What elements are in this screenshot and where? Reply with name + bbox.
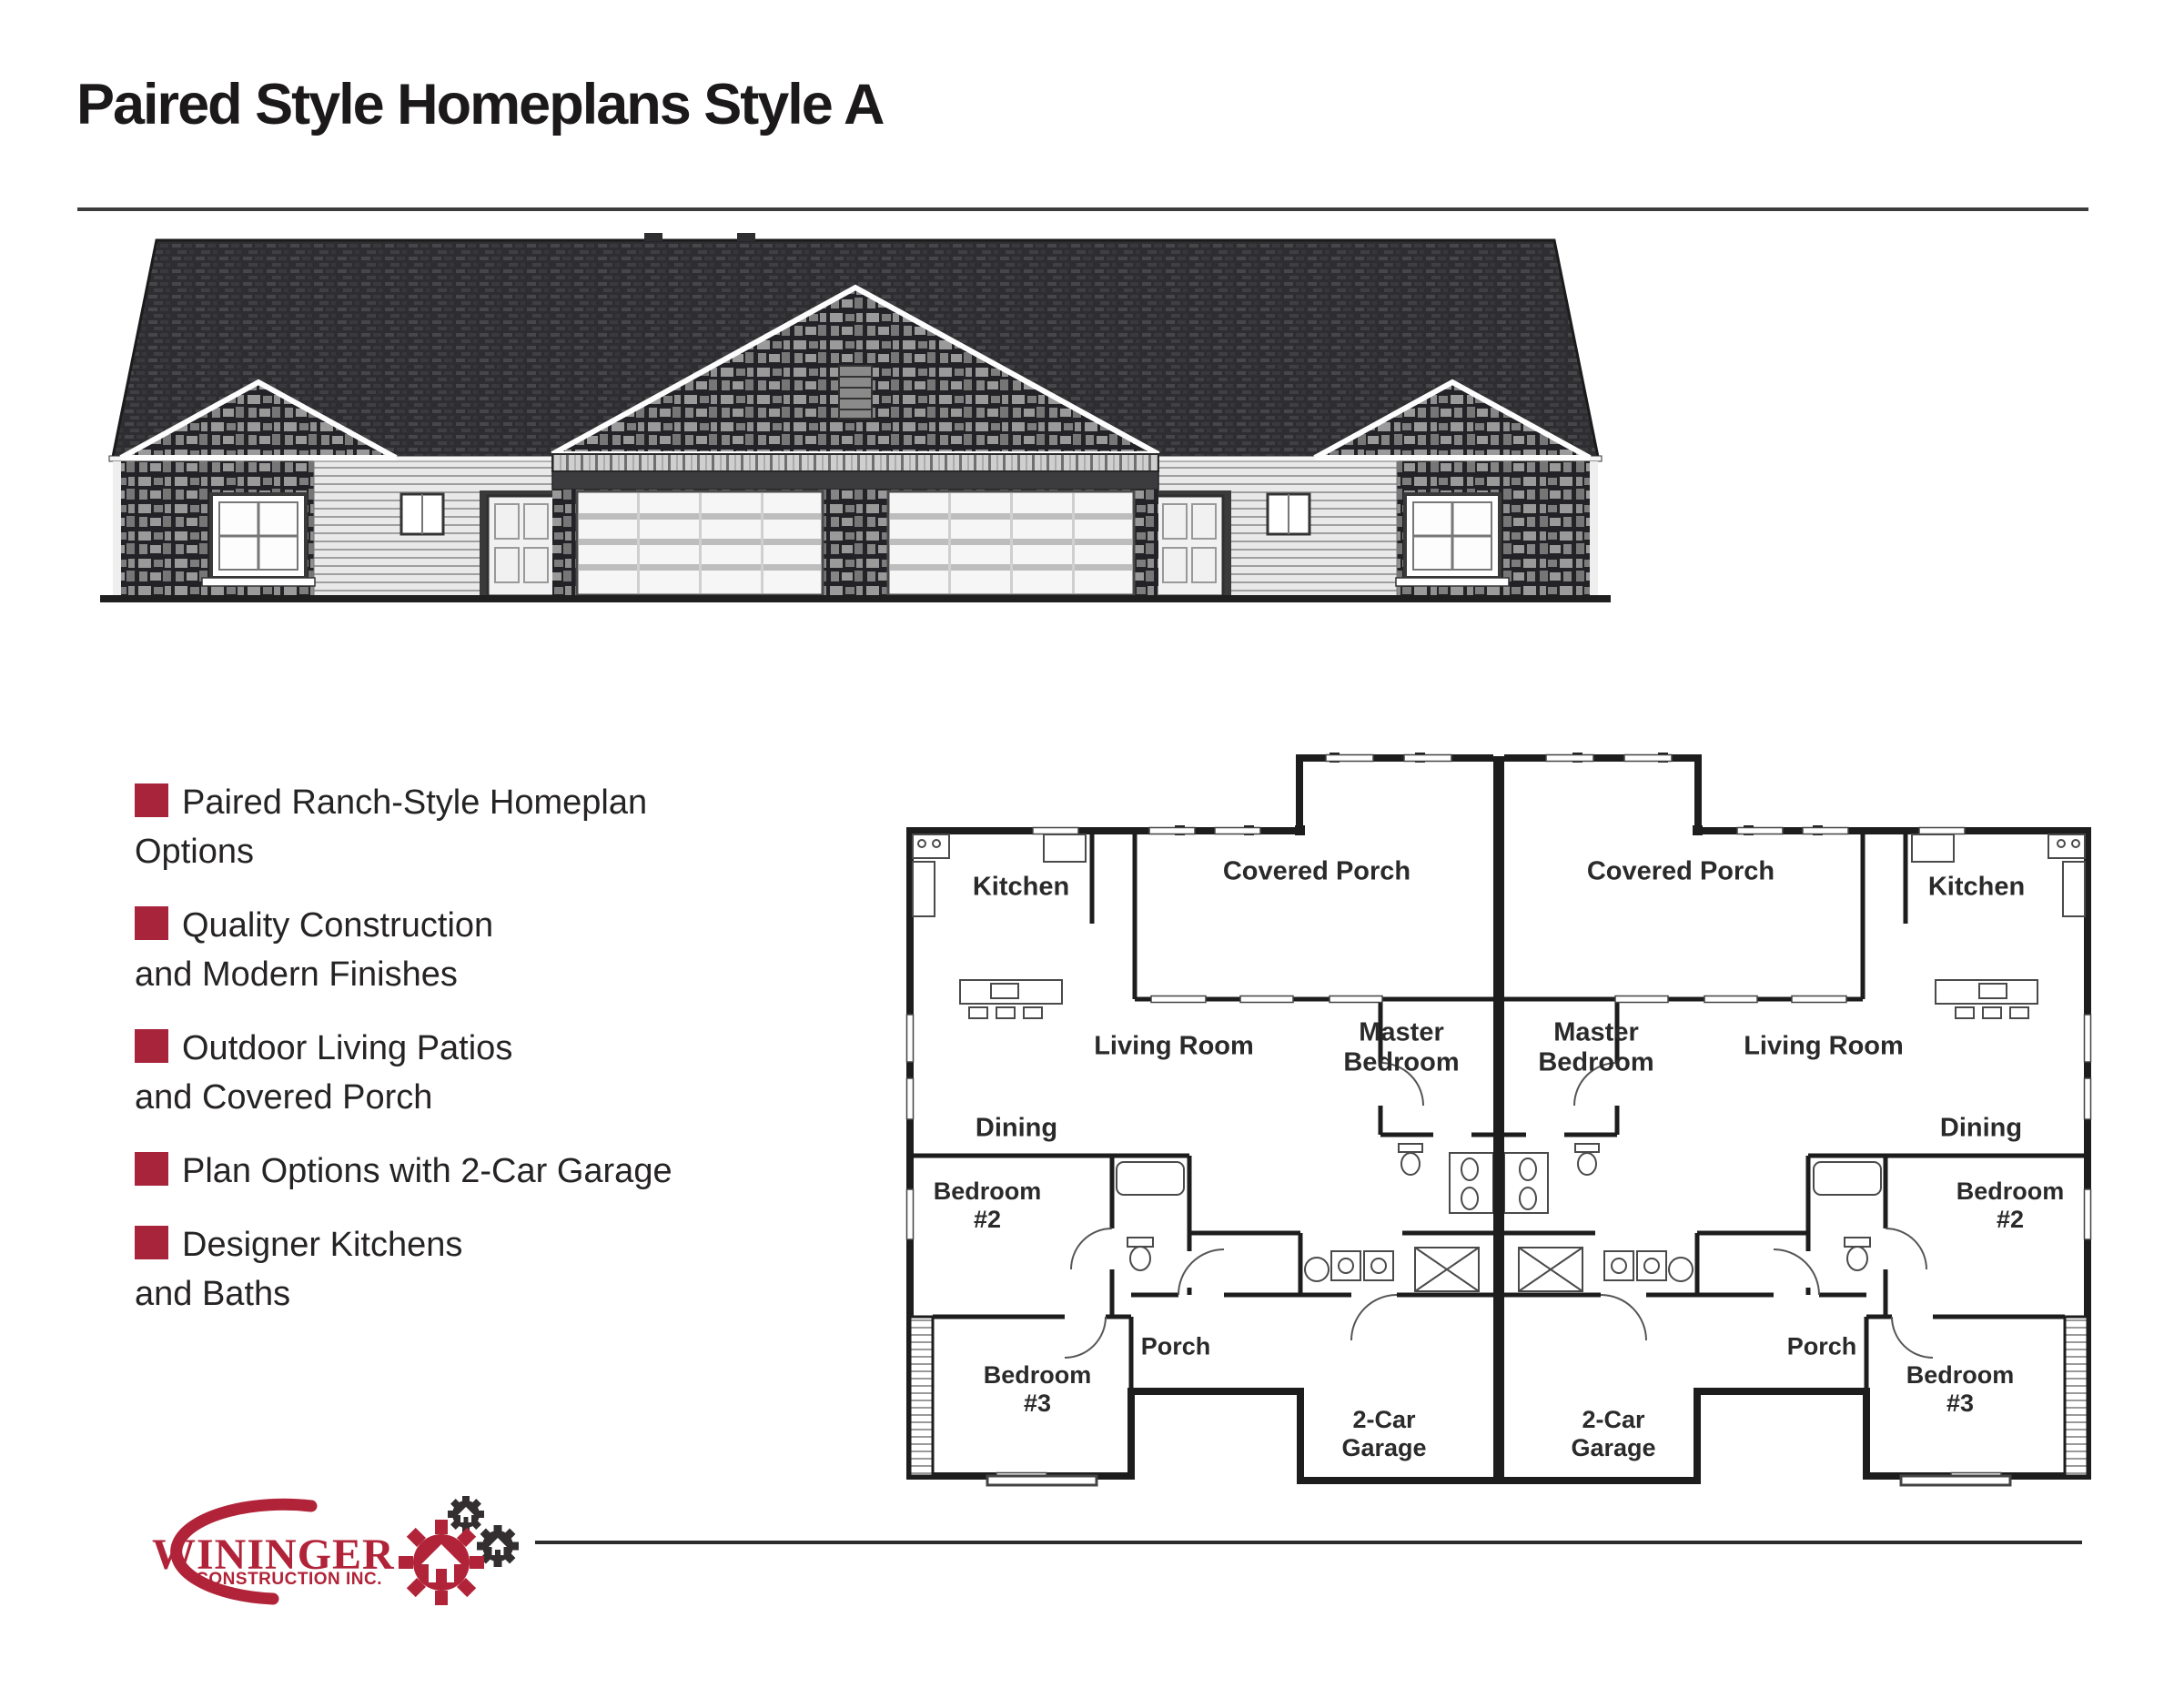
room-label-covered-porch-left: Covered Porch (1223, 856, 1410, 886)
feature-list: Paired Ranch-Style Homeplan Options Qual… (135, 779, 1026, 1344)
feature-item: Paired Ranch-Style Homeplan Options (135, 779, 1026, 877)
slat-band (552, 454, 1158, 471)
garage-door-left (577, 491, 823, 595)
party-wall (1493, 756, 1504, 1484)
footer-rule (535, 1541, 2082, 1544)
room-label-garage-left: 2-Car Garage (1341, 1406, 1426, 1462)
feature-item: Outdoor Living Patios and Covered Porch (135, 1025, 1026, 1123)
interior-walls (910, 831, 1493, 1391)
gable-vent (839, 366, 872, 419)
gear-house-icon-red (399, 1520, 484, 1605)
garage-header (552, 471, 1158, 490)
room-label-living-room-left: Living Room (1094, 1031, 1254, 1061)
room-label-master-bedroom-right: Master Bedroom (1538, 1018, 1653, 1079)
feature-text: Designer Kitchens and Baths (135, 1226, 462, 1313)
room-label-porch-left: Porch (1141, 1332, 1211, 1360)
feature-item: Quality Construction and Modern Finishes (135, 902, 1026, 1000)
floor-plan: Kitchen Covered Porch Living Room Master… (905, 742, 2092, 1488)
bullet-square-icon (135, 1152, 168, 1186)
garage-door-right (888, 491, 1134, 595)
ridge-cap-icon (737, 233, 755, 241)
closet-strip (910, 1317, 933, 1476)
feature-item: Plan Options with 2-Car Garage (135, 1147, 1026, 1197)
elevation-drawing (100, 229, 1611, 612)
feature-text: Plan Options with 2-Car Garage (182, 1152, 672, 1190)
logo-tagline: CONSTRUCTION INC. (196, 1570, 382, 1589)
feature-item: Designer Kitchens and Baths (135, 1221, 1026, 1319)
bullet-square-icon (135, 783, 168, 817)
door-arcs (1065, 1063, 1423, 1358)
room-label-porch-right: Porch (1787, 1332, 1857, 1360)
wing-small-window (401, 494, 443, 534)
gear-house-icon-dark-top (448, 1496, 484, 1532)
page-title: Paired Style Homeplans Style A (76, 76, 884, 134)
company-logo: WININGER CONSTRUCTION INC. (86, 1492, 560, 1629)
feature-text: Quality Construction and Modern Finishes (135, 906, 493, 994)
bullet-square-icon (135, 1029, 168, 1063)
ridge-cap-icon (644, 233, 662, 241)
ground-line (100, 595, 1611, 602)
room-label-kitchen-right: Kitchen (1928, 872, 2025, 902)
feature-text: Paired Ranch-Style Homeplan Options (135, 783, 647, 871)
entry-door (480, 490, 563, 598)
wing-window (202, 494, 315, 586)
room-label-garage-right: 2-Car Garage (1571, 1406, 1655, 1462)
bullet-square-icon (135, 906, 168, 940)
room-label-bedroom3-left: Bedroom #3 (984, 1361, 1092, 1418)
room-label-master-bedroom-left: Master Bedroom (1343, 1018, 1459, 1079)
room-label-dining-right: Dining (1940, 1113, 2022, 1143)
room-label-living-room-right: Living Room (1744, 1031, 1904, 1061)
entry-stoop (987, 1476, 1097, 1485)
bullet-square-icon (135, 1226, 168, 1259)
room-label-covered-porch-right: Covered Porch (1587, 856, 1774, 886)
room-label-dining-left: Dining (976, 1113, 1057, 1143)
room-label-bedroom2-left: Bedroom #2 (934, 1178, 1042, 1234)
room-label-kitchen-left: Kitchen (973, 872, 1069, 902)
room-label-bedroom3-right: Bedroom #3 (1906, 1361, 2015, 1418)
brochure-page: Paired Style Homeplans Style A (0, 0, 2184, 1688)
title-rule (77, 207, 2088, 211)
room-label-bedroom2-right: Bedroom #2 (1956, 1178, 2065, 1234)
feature-text: Outdoor Living Patios and Covered Porch (135, 1029, 512, 1117)
